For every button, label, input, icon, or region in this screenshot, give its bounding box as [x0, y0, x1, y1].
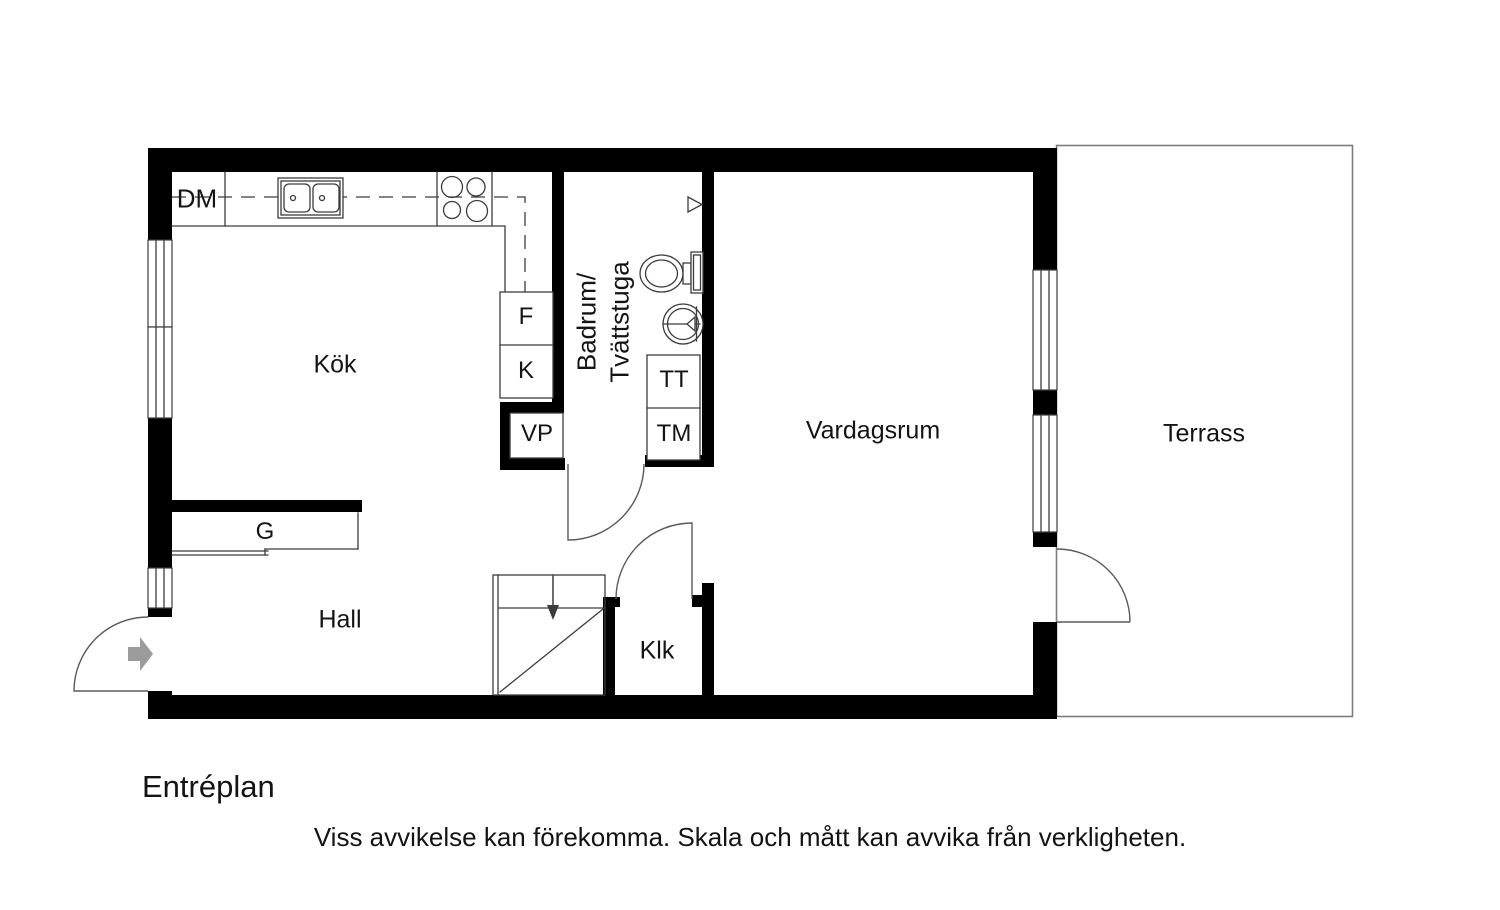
wall-vp-bottom	[500, 458, 565, 470]
stairs-down-arrow-icon	[547, 605, 559, 620]
room-label-bathroom: Badrum/ Tvättstuga	[571, 261, 636, 382]
room-label-bathroom-line1: Badrum/	[571, 261, 604, 382]
toilet-tank	[691, 252, 703, 293]
bathroom-door-swing	[568, 464, 644, 540]
stairs-outline	[493, 575, 605, 695]
wall-right-seg1	[1033, 148, 1057, 270]
floor-plan-page: DM Kök F K VP TT TM Badrum/ Tvättstuga V…	[0, 0, 1500, 910]
stairs	[493, 575, 605, 695]
window-left-1	[148, 240, 172, 327]
label-washing-machine: TM	[657, 421, 692, 447]
wall-top	[148, 148, 1057, 172]
wall-bottom	[148, 695, 1057, 719]
kitchen-sink-icon	[278, 178, 343, 218]
room-label-bathroom-line2: Tvättstuga	[603, 261, 636, 382]
floor-title: Entréplan	[142, 769, 275, 805]
burner	[444, 202, 461, 219]
disclaimer-text: Viss avvikelse kan förekomma. Skala och …	[0, 822, 1500, 853]
wall-left-seg4	[148, 691, 172, 719]
wall-left-seg2	[148, 418, 172, 568]
wall-wardrobe-top	[148, 500, 362, 512]
washbasin-icon	[663, 304, 703, 344]
wall-hall-living	[702, 583, 714, 695]
wall-kitchen-bath	[552, 172, 564, 402]
wall-vp-top	[500, 402, 564, 413]
klk-door-swing	[616, 523, 692, 599]
burner	[467, 178, 485, 196]
window-left-3	[148, 568, 172, 608]
label-freezer: F	[519, 304, 534, 330]
shower-triangle-icon	[688, 197, 702, 212]
room-label-kitchen: Kök	[313, 351, 356, 379]
window-left-2	[148, 327, 172, 418]
label-dishwasher: DM	[177, 185, 217, 214]
wall-klk-jamb-right	[692, 595, 703, 607]
window-right-2	[1033, 415, 1057, 532]
stove-icon	[442, 177, 488, 222]
room-label-closet: Klk	[640, 637, 675, 665]
room-label-terrace: Terrass	[1163, 420, 1245, 448]
wall-left-seg3	[148, 608, 172, 617]
stairs-break-line	[500, 609, 603, 692]
label-water-heater: VP	[521, 421, 553, 447]
toilet-connector	[683, 263, 691, 284]
wall-right-seg4	[1033, 622, 1057, 719]
burner	[467, 201, 488, 222]
toilet-icon	[640, 252, 703, 293]
entrance-arrow-icon	[128, 637, 153, 671]
window-right-1	[1033, 270, 1057, 390]
room-label-living: Vardagsrum	[806, 417, 940, 445]
label-wardrobe: G	[256, 519, 275, 545]
room-label-hall: Hall	[318, 606, 361, 634]
burner	[442, 177, 463, 198]
interior-walls	[148, 172, 714, 695]
label-dryer: TT	[659, 367, 688, 393]
wall-right-seg3	[1033, 532, 1057, 547]
wall-right-seg2	[1033, 390, 1057, 415]
wall-left-seg1	[148, 148, 172, 240]
label-fridge: K	[518, 358, 534, 384]
wall-bath-living	[702, 172, 714, 467]
kitchen-counter-edge	[172, 226, 505, 292]
doors	[74, 464, 1130, 691]
terrace-door-swing	[1057, 549, 1130, 622]
